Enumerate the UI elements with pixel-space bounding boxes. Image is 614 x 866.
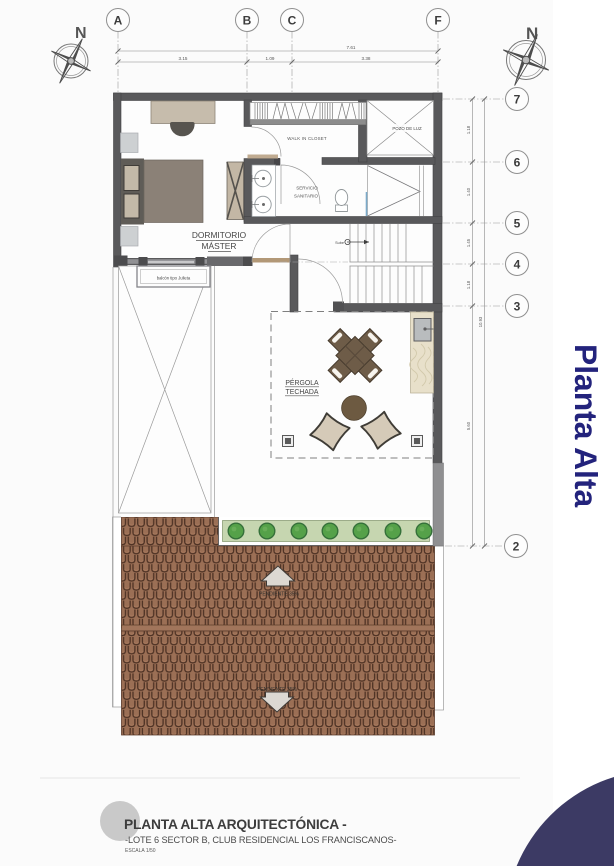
- svg-text:POZO DE LUZ: POZO DE LUZ: [392, 126, 422, 131]
- svg-text:F: F: [434, 14, 441, 28]
- svg-text:1.40: 1.40: [466, 187, 471, 196]
- svg-text:TECHADA: TECHADA: [286, 389, 319, 396]
- svg-text:Sube: Sube: [335, 241, 344, 245]
- svg-text:B: B: [243, 14, 252, 28]
- svg-text:3.15: 3.15: [179, 56, 188, 61]
- svg-text:Planta Alta: Planta Alta: [568, 344, 604, 507]
- svg-text:C: C: [288, 14, 297, 28]
- svg-text:4: 4: [514, 258, 521, 272]
- svg-text:PLANTA ALTA ARQUITECTÓNICA -: PLANTA ALTA ARQUITECTÓNICA -: [124, 815, 347, 832]
- svg-text:A: A: [114, 14, 123, 28]
- svg-text:balcón tipo Julieta: balcón tipo Julieta: [157, 276, 191, 281]
- svg-text:1.18: 1.18: [466, 280, 471, 289]
- svg-text:PENDIENTE 35%: PENDIENTE 35%: [259, 592, 300, 598]
- svg-text:ESCALA 1/50: ESCALA 1/50: [125, 848, 156, 854]
- svg-text:5: 5: [514, 217, 521, 231]
- svg-text:PÉRGOLA: PÉRGOLA: [285, 378, 319, 387]
- svg-text:N: N: [75, 25, 87, 42]
- svg-text:7.61: 7.61: [347, 45, 356, 50]
- svg-text:3.38: 3.38: [362, 56, 371, 61]
- svg-text:-LOTE 6 SECTOR B, CLUB RESIDEN: -LOTE 6 SECTOR B, CLUB RESIDENCIAL LOS F…: [125, 835, 397, 845]
- svg-text:SERVICIO: SERVICIO: [296, 186, 318, 191]
- svg-text:WALK IN CLOSET: WALK IN CLOSET: [287, 136, 327, 141]
- svg-text:3: 3: [514, 300, 521, 314]
- svg-text:1.18: 1.18: [466, 125, 471, 134]
- svg-text:2: 2: [513, 540, 520, 554]
- svg-text:1.45: 1.45: [466, 238, 471, 247]
- svg-text:DORMITORIO: DORMITORIO: [192, 230, 247, 240]
- svg-text:6: 6: [514, 156, 521, 170]
- svg-text:1.09: 1.09: [266, 56, 275, 61]
- svg-text:5.60: 5.60: [466, 421, 471, 430]
- svg-text:10.93: 10.93: [478, 316, 483, 327]
- svg-text:MÁSTER: MÁSTER: [202, 241, 237, 251]
- svg-text:7: 7: [514, 93, 521, 107]
- svg-text:SANITARIO: SANITARIO: [294, 194, 318, 199]
